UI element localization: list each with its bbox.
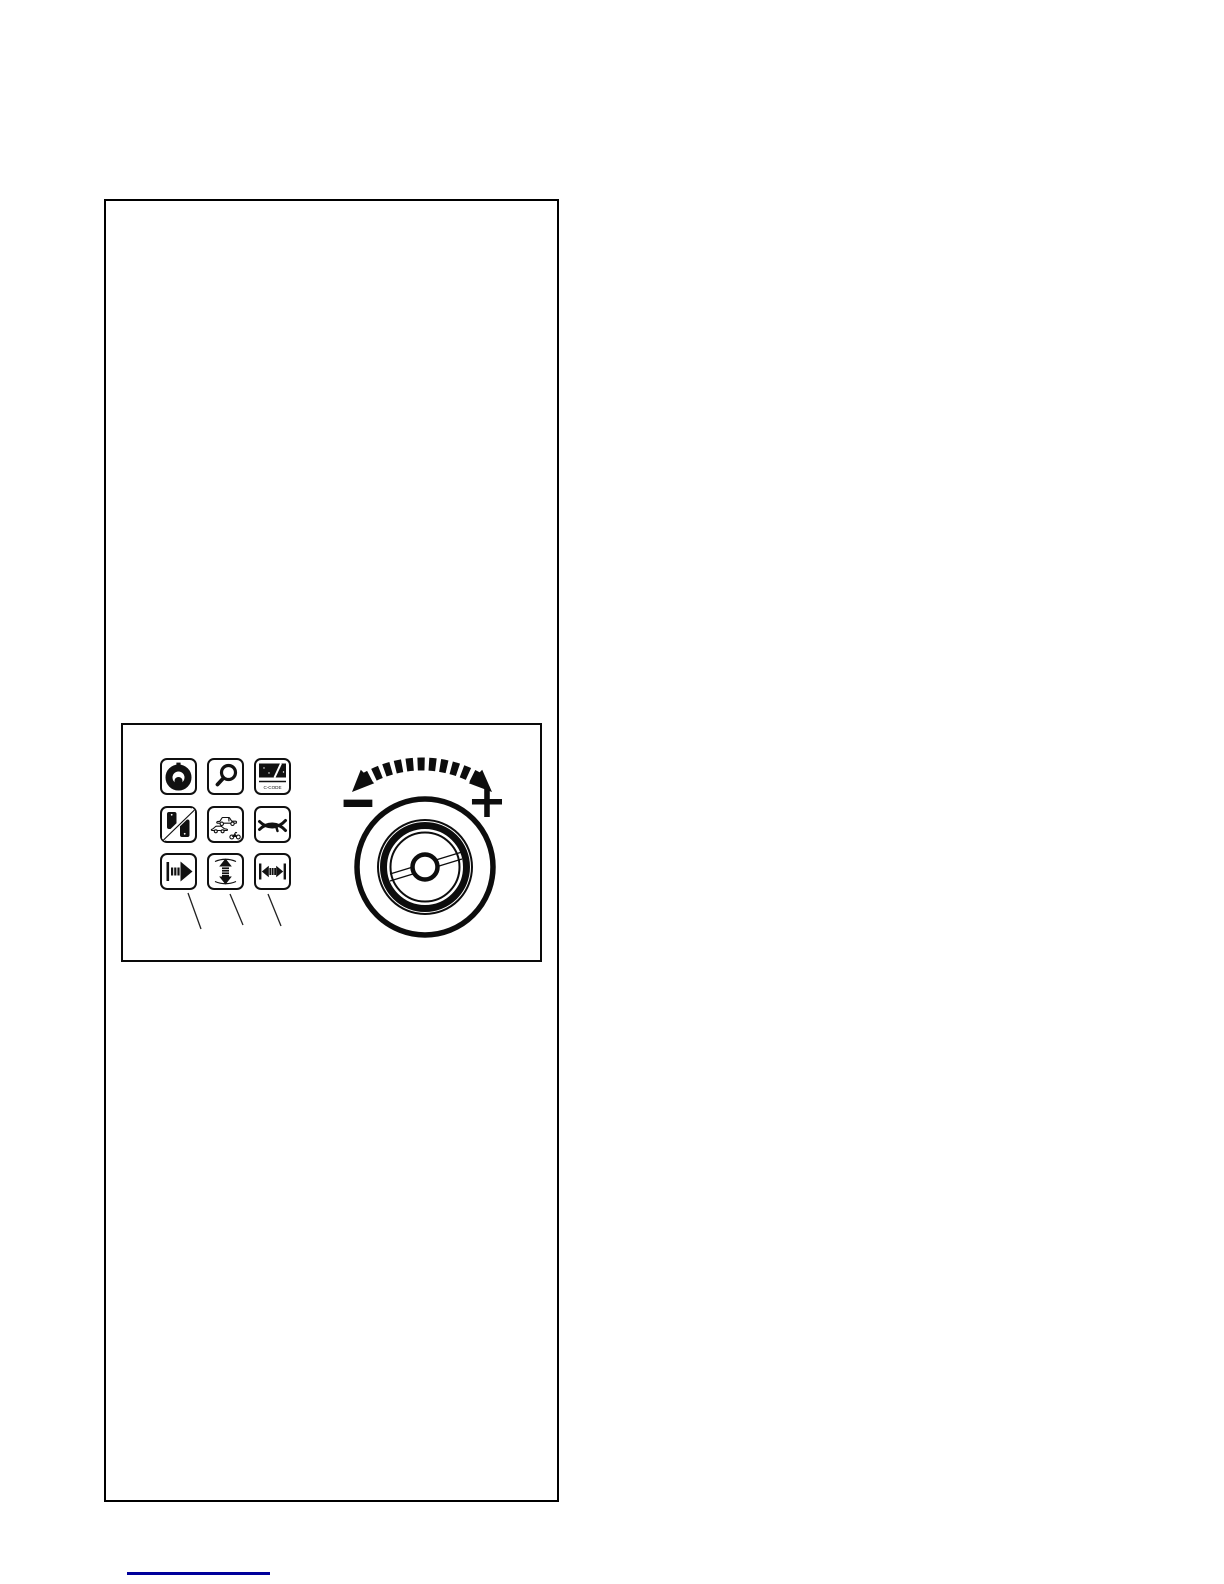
- vehicle-type-icon: [209, 808, 242, 841]
- spoke-mode-button: [254, 806, 291, 843]
- knob-minus-label: −: [338, 773, 378, 829]
- fine-readout-button: [207, 758, 244, 795]
- footer-link-underline[interactable]: [127, 1572, 270, 1575]
- c-code-button: C-CODE: [254, 758, 291, 795]
- knob-plus-label: +: [467, 781, 507, 821]
- rim-width-button: [254, 853, 291, 890]
- width-arrow-icon: [256, 855, 289, 888]
- wheel-optimization-icon: [162, 760, 195, 793]
- control-panel-diagram: C-CODE: [121, 723, 542, 962]
- rim-diameter-button: [207, 853, 244, 890]
- diameter-arrow-icon: [209, 855, 242, 888]
- c-code-label: C-CODE: [263, 785, 281, 790]
- manual-page: C-CODE: [0, 0, 1224, 1584]
- vehicle-type-button: [207, 806, 244, 843]
- leader-lines: [188, 893, 281, 929]
- rim-distance-button: [160, 853, 197, 890]
- wheel-optimization-button: [160, 758, 197, 795]
- wheel-spokes-icon: [256, 808, 289, 841]
- magnifier-icon: [209, 760, 242, 793]
- distance-arrow-icon: [162, 855, 195, 888]
- c-code-display-icon: C-CODE: [256, 760, 289, 793]
- rotation-arc: [364, 764, 480, 780]
- split-weight-blocks-icon: [162, 808, 195, 841]
- weight-split-button: [160, 806, 197, 843]
